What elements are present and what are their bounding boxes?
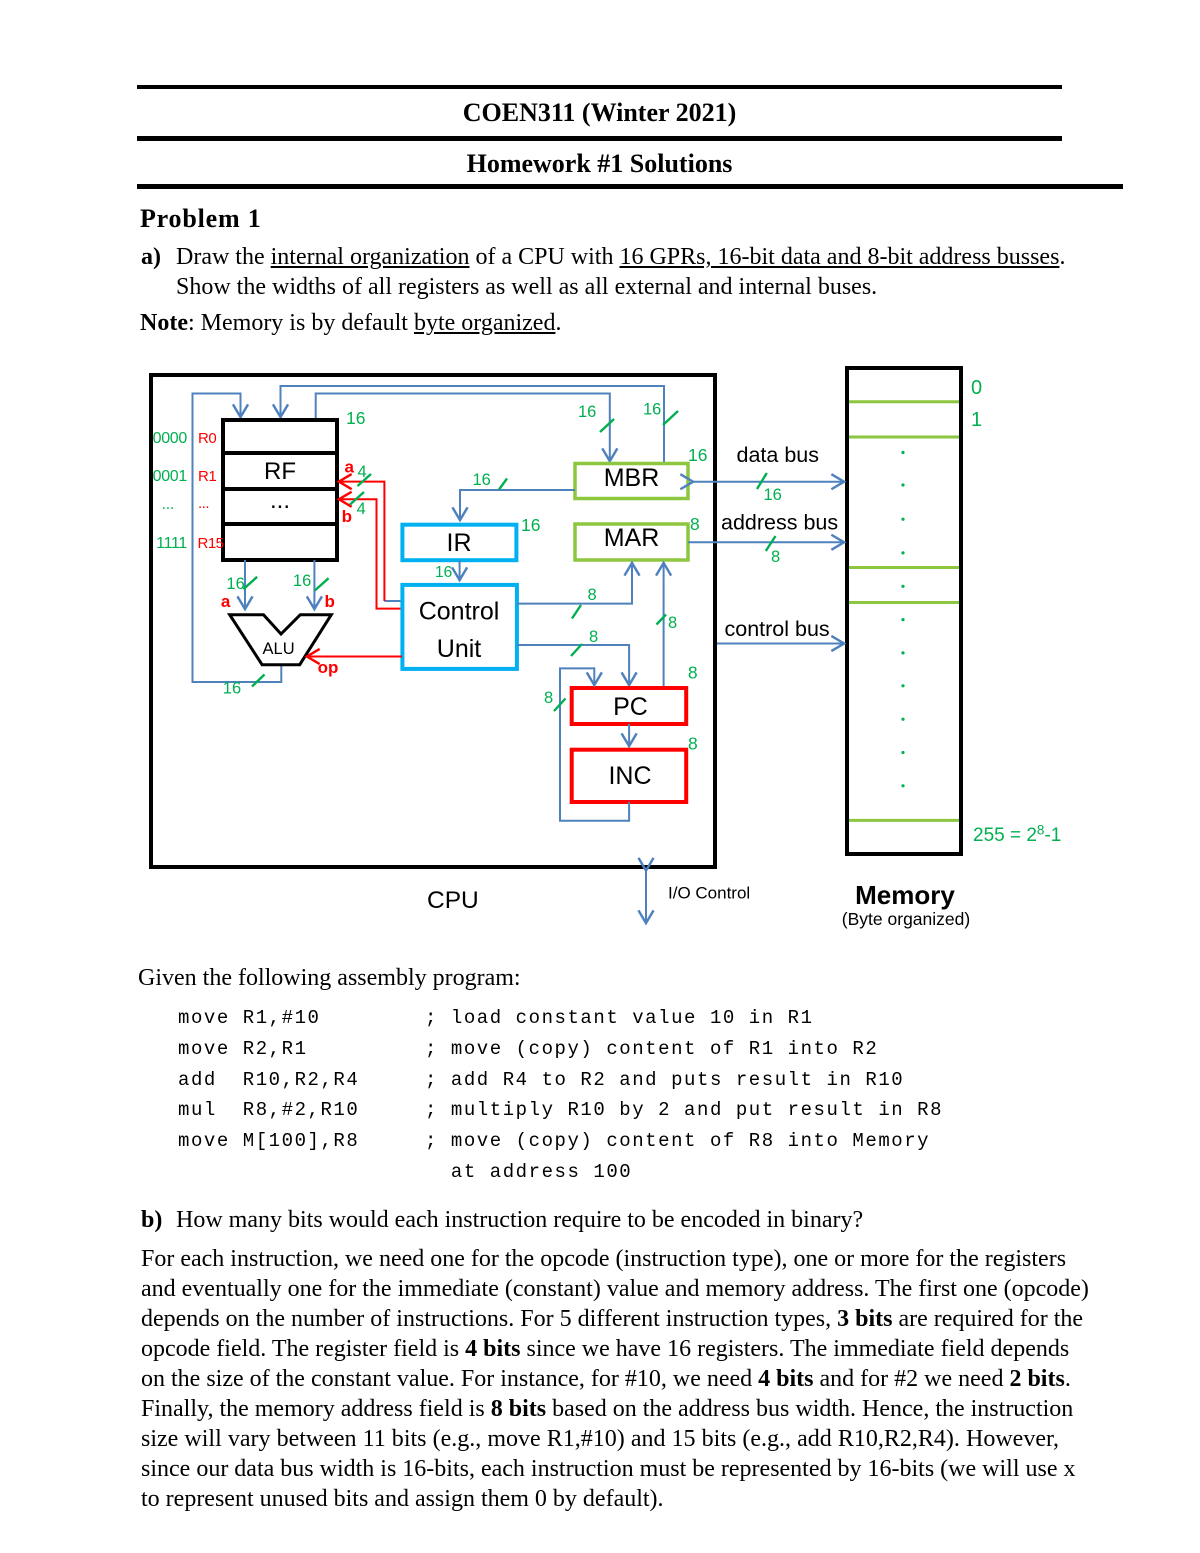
svg-text:1: 1 [971, 409, 982, 431]
svg-text:0001: 0001 [153, 468, 188, 485]
svg-text:CPU: CPU [427, 887, 479, 914]
svg-text:control bus: control bus [725, 617, 830, 641]
svg-text:8: 8 [589, 628, 598, 646]
svg-text:8: 8 [690, 514, 700, 534]
svg-text:(Byte organized): (Byte organized) [842, 909, 970, 929]
svg-text:I/O Control: I/O Control [668, 884, 750, 903]
svg-text:16: 16 [764, 486, 782, 504]
svg-text:Control: Control [419, 597, 500, 625]
svg-text:Unit: Unit [437, 635, 482, 663]
svg-text:16: 16 [578, 403, 596, 421]
svg-text:b: b [342, 507, 352, 526]
svg-text:8: 8 [688, 663, 698, 683]
svg-text:8: 8 [771, 548, 780, 566]
svg-text:RF: RF [264, 458, 296, 485]
svg-text:16: 16 [688, 445, 707, 465]
svg-text:16: 16 [521, 515, 540, 535]
svg-text:16: 16 [223, 680, 241, 698]
svg-text:Memory: Memory [855, 880, 955, 910]
svg-text:16: 16 [293, 572, 311, 590]
svg-text:255 = 28-1: 255 = 28-1 [973, 823, 1061, 847]
svg-text:IR: IR [447, 529, 472, 557]
svg-text:address bus: address bus [721, 510, 838, 534]
svg-text:4: 4 [357, 500, 366, 518]
svg-text:MBR: MBR [604, 464, 660, 492]
svg-text:8: 8 [544, 689, 553, 707]
svg-text:16: 16 [643, 401, 661, 419]
svg-text:MAR: MAR [604, 524, 660, 552]
svg-text:a: a [345, 457, 355, 476]
svg-text:a: a [221, 592, 231, 611]
svg-text:R0: R0 [198, 430, 216, 447]
svg-text:...: ... [162, 496, 174, 513]
svg-text:8: 8 [588, 586, 597, 604]
svg-text:8: 8 [668, 614, 677, 632]
svg-text:8: 8 [688, 733, 698, 753]
svg-text:R1: R1 [198, 468, 216, 485]
svg-text:16: 16 [435, 564, 452, 581]
svg-text:PC: PC [613, 693, 648, 721]
svg-text:INC: INC [608, 762, 651, 790]
svg-text:1111: 1111 [156, 535, 187, 552]
svg-text:...: ... [270, 487, 290, 514]
svg-text:16: 16 [346, 408, 365, 428]
svg-text:16: 16 [473, 471, 491, 489]
svg-text:op: op [318, 658, 339, 677]
svg-text:16: 16 [226, 575, 244, 593]
svg-text:0000: 0000 [153, 430, 188, 447]
svg-text:ALU: ALU [263, 640, 295, 658]
svg-text:R15: R15 [198, 535, 224, 552]
svg-text:data bus: data bus [737, 443, 819, 467]
svg-text:...: ... [198, 495, 209, 512]
svg-text:b: b [325, 592, 335, 611]
svg-text:0: 0 [971, 377, 982, 399]
